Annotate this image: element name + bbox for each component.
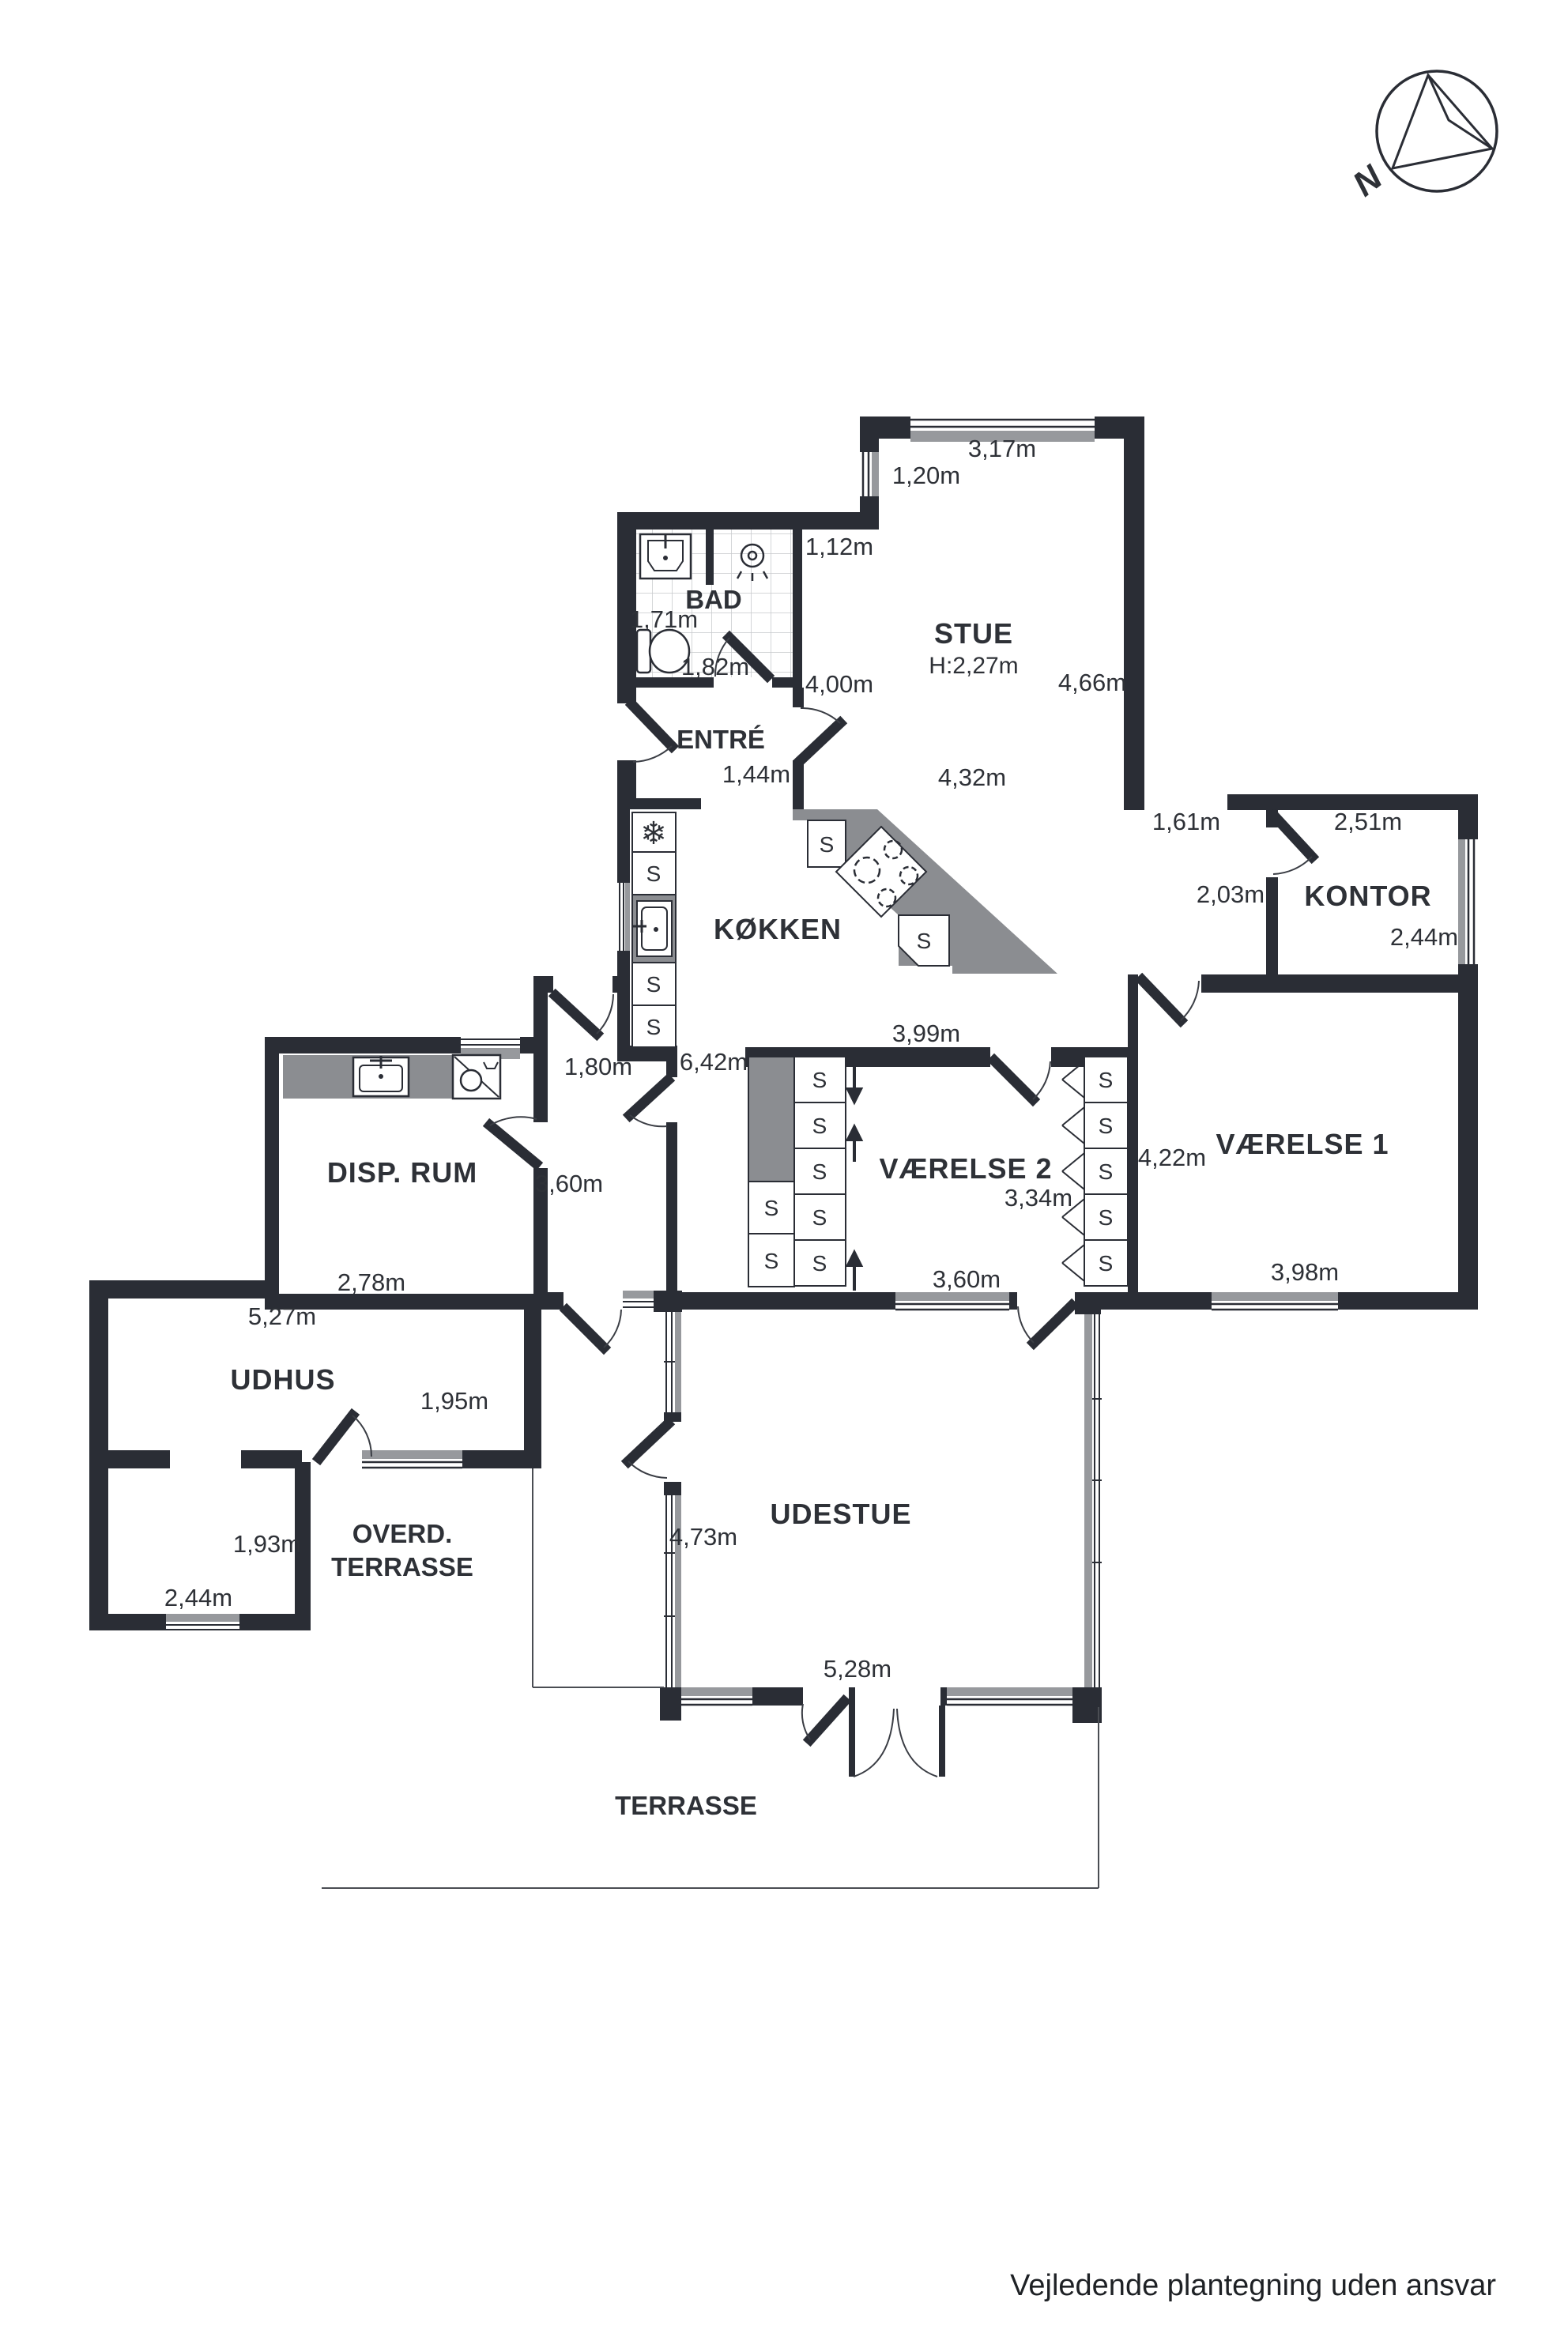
dim-gang-length: 6,42m	[680, 1048, 748, 1076]
dim-bad-depth: 1,82m	[681, 653, 749, 680]
cabinet-s: S	[812, 1205, 827, 1230]
washing-machine-icon	[453, 1055, 500, 1099]
dim-stue-bad-side: 1,12m	[805, 533, 873, 560]
cabinet-s: S	[1099, 1159, 1114, 1184]
glass-wall	[1084, 1314, 1102, 1687]
kitchen-appliance-column: ❄	[632, 812, 676, 1047]
cabinet-s: S	[812, 1114, 827, 1138]
cabinet-s: S	[1099, 1114, 1114, 1138]
dim-entre: 1,44m	[722, 760, 790, 788]
dim-kontor-window: 1,61m	[1152, 808, 1220, 835]
french-door-arc	[854, 1709, 894, 1777]
cabinet-s: S	[820, 832, 835, 857]
room-label-vaerelse1: VÆRELSE 1	[1216, 1128, 1389, 1160]
window	[617, 883, 630, 951]
dim-stue-top: 3,17m	[968, 435, 1036, 462]
cabinet-s: S	[646, 1015, 661, 1039]
floor-plan-page: ❄	[0, 0, 1568, 2352]
closet-door-indicators	[1062, 1061, 1084, 1281]
dim-vaerelse1-south: 3,98m	[1271, 1258, 1339, 1286]
cabinet-s: S	[812, 1251, 827, 1276]
cabinet-s: S	[764, 1196, 779, 1220]
dim-stue-west: 4,00m	[805, 670, 873, 698]
room-label-terrasse: TERRASSE	[615, 1791, 757, 1820]
cabinet-s: S	[646, 972, 661, 997]
window	[1212, 1292, 1338, 1312]
window	[681, 1687, 752, 1707]
dim-udhus-north: 5,27m	[248, 1302, 316, 1330]
room-label-kontor: KONTOR	[1304, 880, 1431, 912]
window	[166, 1614, 239, 1632]
floor-plan-drawing: ❄	[0, 0, 1568, 2352]
dim-vaerelse2-window: 3,60m	[933, 1265, 1001, 1293]
french-door-arc	[897, 1709, 937, 1777]
compass-circle	[1377, 71, 1497, 191]
snowflake-icon: ❄	[640, 816, 667, 851]
cabinet-s: S	[1099, 1205, 1114, 1230]
dim-stue-upper-left: 1,20m	[892, 462, 960, 489]
utility-sink-icon	[353, 1056, 409, 1096]
room-label-overd-line2: TERRASSE	[331, 1552, 473, 1581]
dim-kontor-east: 2,44m	[1390, 923, 1458, 951]
room-label-entre: ENTRÉ	[677, 725, 765, 754]
glass-wall	[664, 1312, 681, 1687]
window	[623, 1291, 654, 1310]
dim-udestue-south: 5,28m	[824, 1655, 891, 1683]
dim-gang-south: 3,60m	[535, 1170, 603, 1197]
cabinet-s: S	[917, 929, 932, 953]
dim-stue-width: 4,32m	[938, 763, 1006, 791]
dim-stue-east: 4,66m	[1058, 669, 1126, 696]
north-arrow-icon	[1393, 75, 1492, 168]
dim-disprum-south: 2,78m	[337, 1268, 405, 1296]
room-label-vaerelse2: VÆRELSE 2	[879, 1152, 1052, 1185]
stue-ceiling-height: H:2,27m	[929, 653, 1018, 679]
dim-annex-east: 1,93m	[233, 1530, 301, 1558]
room-label-udhus: UDHUS	[230, 1363, 335, 1396]
cabinet-s: S	[764, 1249, 779, 1273]
window	[947, 1687, 1072, 1707]
dim-vaerelse2-width: 3,34m	[1004, 1184, 1072, 1212]
cabinet-s: S	[1099, 1068, 1114, 1092]
disclaimer-text: Vejledende plantegning uden ansvar	[1010, 2269, 1496, 2302]
compass-north-label: N	[1346, 157, 1390, 204]
window	[1458, 839, 1478, 964]
room-label-overd-line1: OVERD.	[352, 1519, 453, 1548]
dim-bad-width: 1,71m	[630, 605, 698, 633]
dim-kontor-west: 2,03m	[1197, 880, 1265, 908]
disprum-fixtures	[283, 1055, 500, 1099]
bath-sink-icon	[640, 534, 691, 579]
window	[895, 1292, 1009, 1312]
room-label-udestue: UDESTUE	[770, 1498, 911, 1530]
compass: N	[1346, 71, 1497, 204]
dim-vaerelse1-west: 4,22m	[1138, 1144, 1206, 1171]
room-label-stue: STUE	[934, 617, 1013, 650]
window	[362, 1450, 462, 1470]
dim-kontor-north: 2,51m	[1334, 808, 1402, 835]
room-label-disprum: DISP. RUM	[327, 1156, 477, 1189]
dim-annex-south: 2,44m	[164, 1584, 232, 1611]
dim-udestue-west: 4,73m	[669, 1523, 737, 1551]
dim-kokken-south: 3,99m	[892, 1020, 960, 1047]
slide-arrows	[848, 1065, 861, 1291]
cabinet-s: S	[812, 1068, 827, 1092]
room-label-kokken: KØKKEN	[714, 913, 842, 945]
dim-udhus-east: 1,95m	[420, 1387, 488, 1415]
dim-gang-width: 1,80m	[564, 1053, 632, 1080]
cabinet-s: S	[646, 861, 661, 886]
cabinet-s: S	[1099, 1251, 1114, 1276]
cabinet-s: S	[812, 1159, 827, 1184]
kitchen-sink-icon	[632, 901, 672, 956]
window	[860, 452, 879, 496]
